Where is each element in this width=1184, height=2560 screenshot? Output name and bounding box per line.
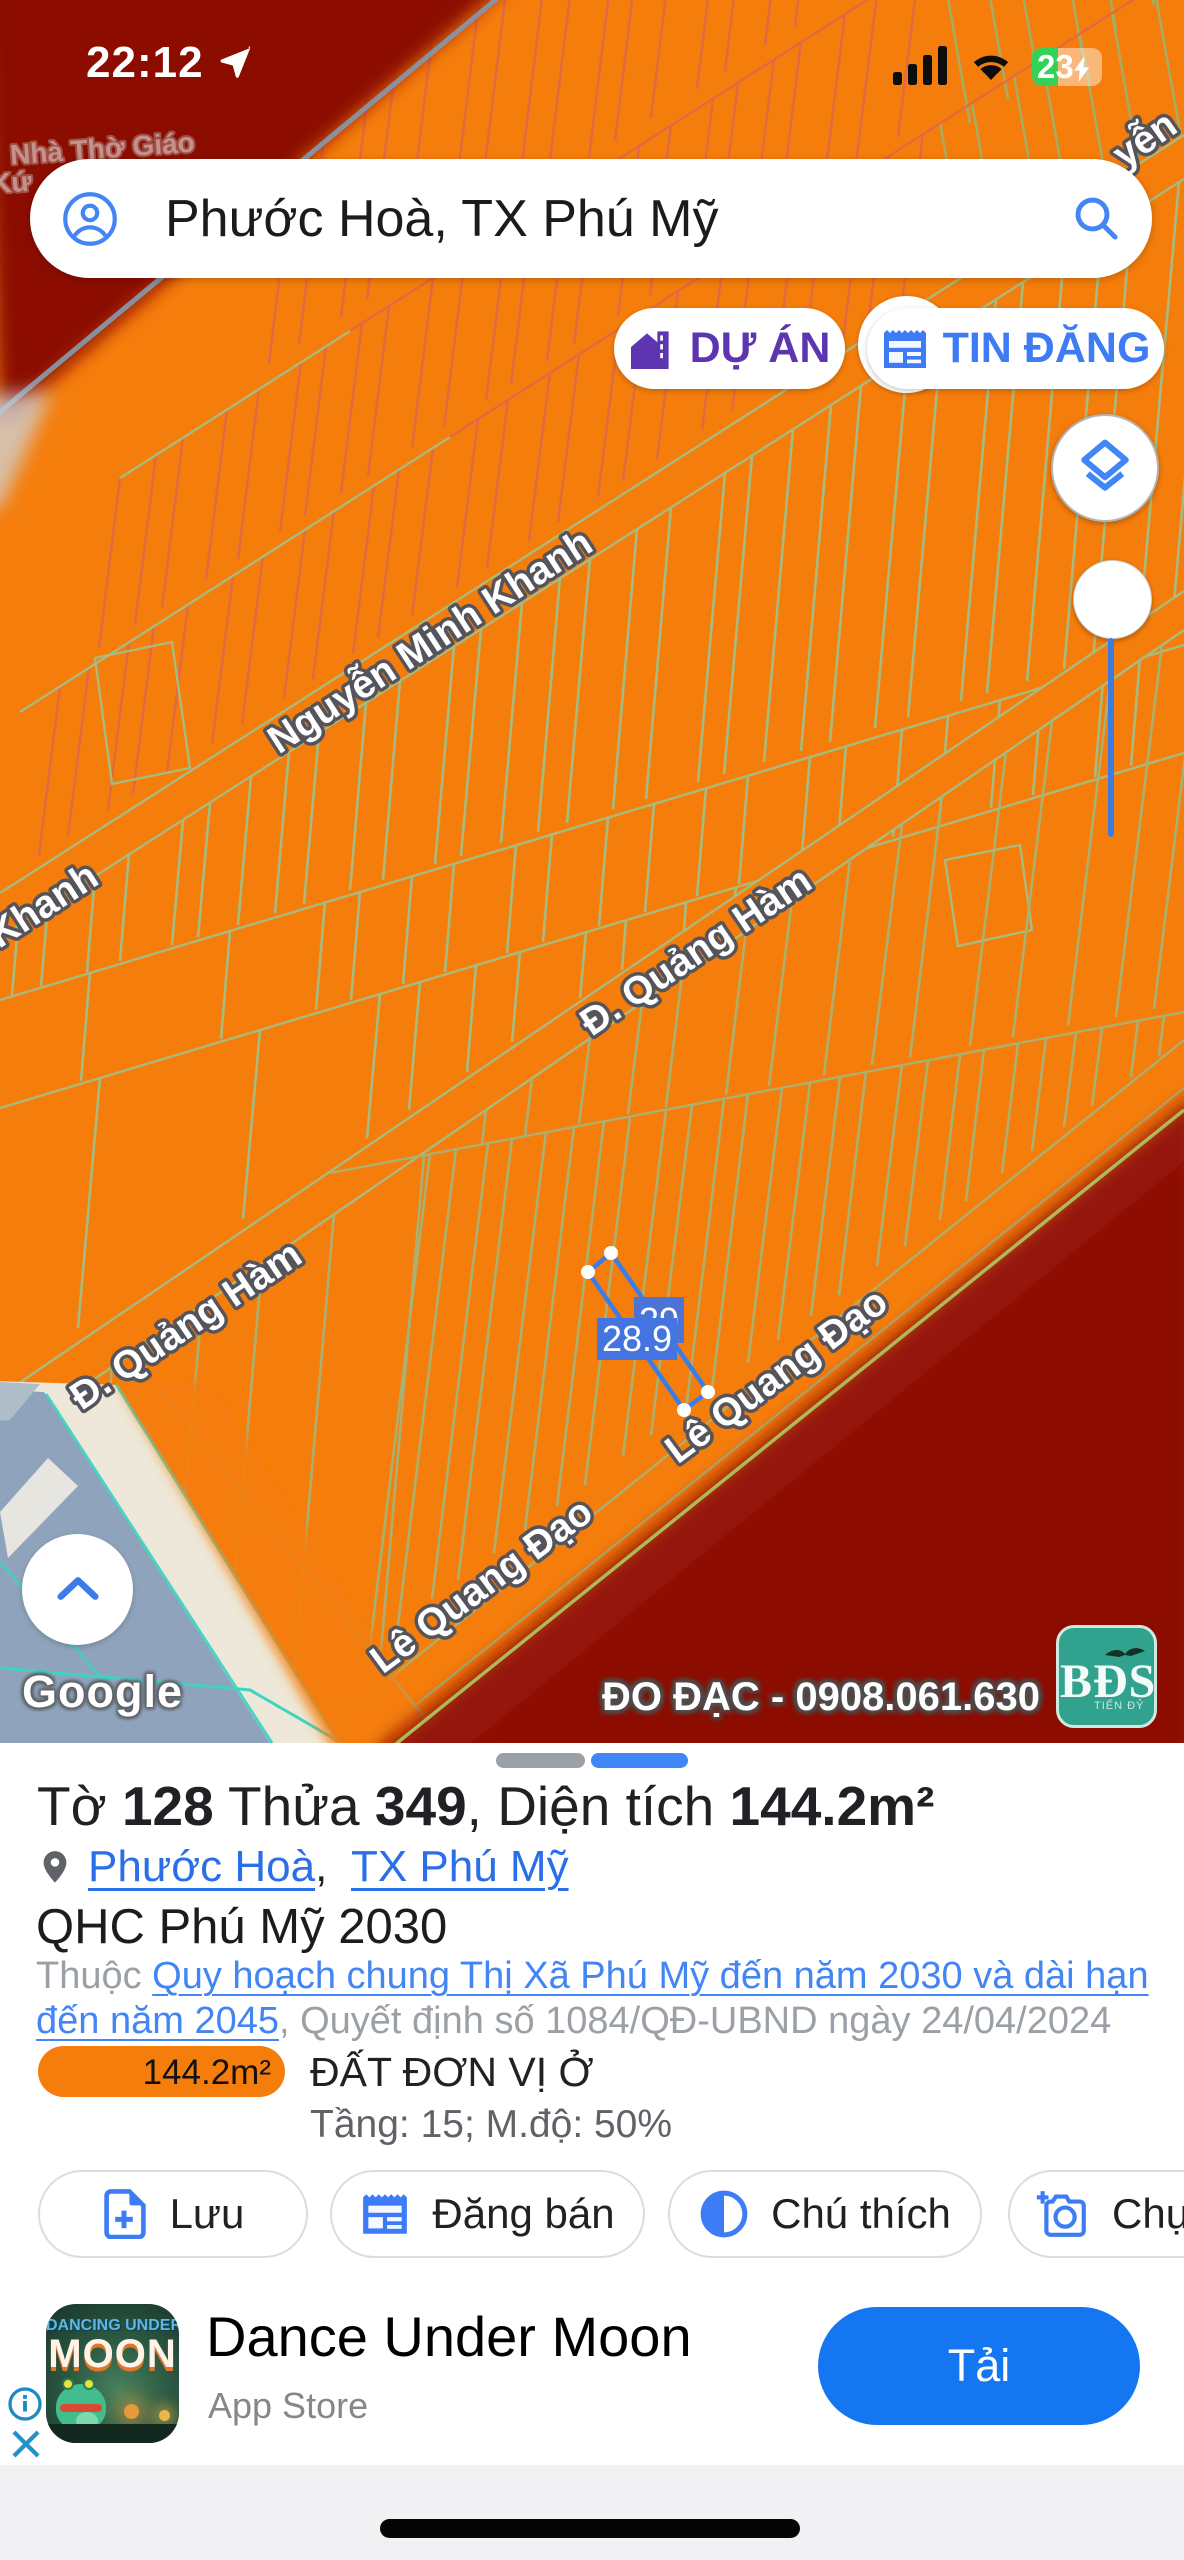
svg-text:Kứ: Kứ [0, 166, 33, 200]
svg-text:28.9: 28.9 [602, 1318, 672, 1359]
